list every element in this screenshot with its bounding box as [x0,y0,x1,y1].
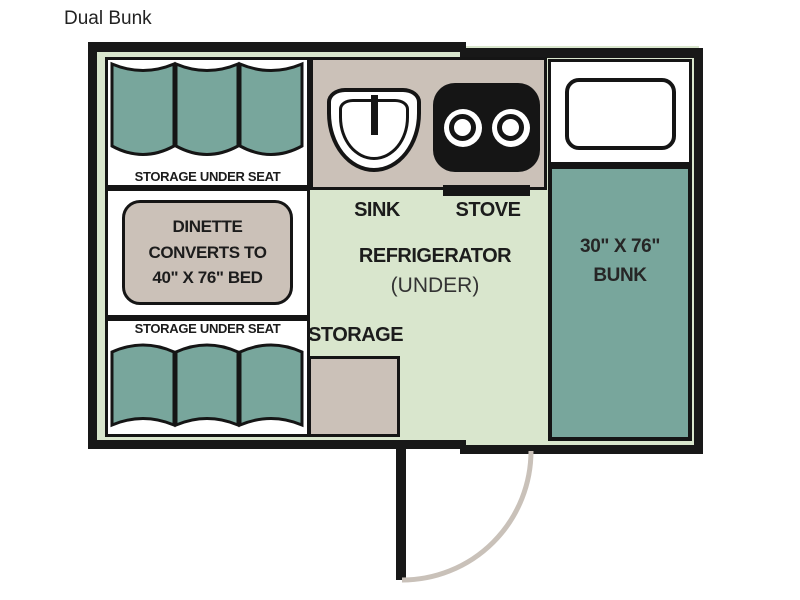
dinette: DINETTE CONVERTS TO 40" X 76" BED [105,188,310,318]
floorplan-canvas: Dual Bunk STORAGE UNDER SEAT DINETTE CON… [0,0,800,600]
burner-ring-icon [449,114,476,141]
seat-top-cushions-icon [108,60,307,164]
storage-box [308,356,400,437]
front-cabinet [548,59,692,165]
seat-bottom: STORAGE UNDER SEAT [105,318,310,437]
bunk-label: 30" X 76" BUNK [552,233,688,290]
burner-ring-icon [497,114,524,141]
wall-left [88,42,97,449]
stove-icon [433,83,540,172]
seat-top: STORAGE UNDER SEAT [105,57,310,188]
storage-label: STORAGE [308,324,403,347]
seat-bottom-label: STORAGE UNDER SEAT [108,321,307,336]
seat-top-label: STORAGE UNDER SEAT [108,169,307,184]
door-swing-arc-icon [396,447,538,589]
burner-icon [444,109,482,147]
dinette-table: DINETTE CONVERTS TO 40" X 76" BED [122,200,293,305]
refrigerator-sub-label: (UNDER) [330,274,540,298]
dinette-label: DINETTE CONVERTS TO 40" X 76" BED [148,214,266,291]
faucet-icon [371,95,378,135]
wall-right [694,48,703,454]
stove-label: STOVE [443,199,533,222]
bunk: 30" X 76" BUNK [548,165,692,441]
sink-label: SINK [337,199,417,222]
refrigerator-label: REFRIGERATOR [330,245,540,268]
page-title: Dual Bunk [64,8,152,30]
front-cabinet-pad [565,78,676,150]
burner-icon [492,109,530,147]
stove-handle-icon [443,185,530,196]
wall-top-left [88,42,466,52]
seat-bottom-cushions-icon [108,336,307,428]
